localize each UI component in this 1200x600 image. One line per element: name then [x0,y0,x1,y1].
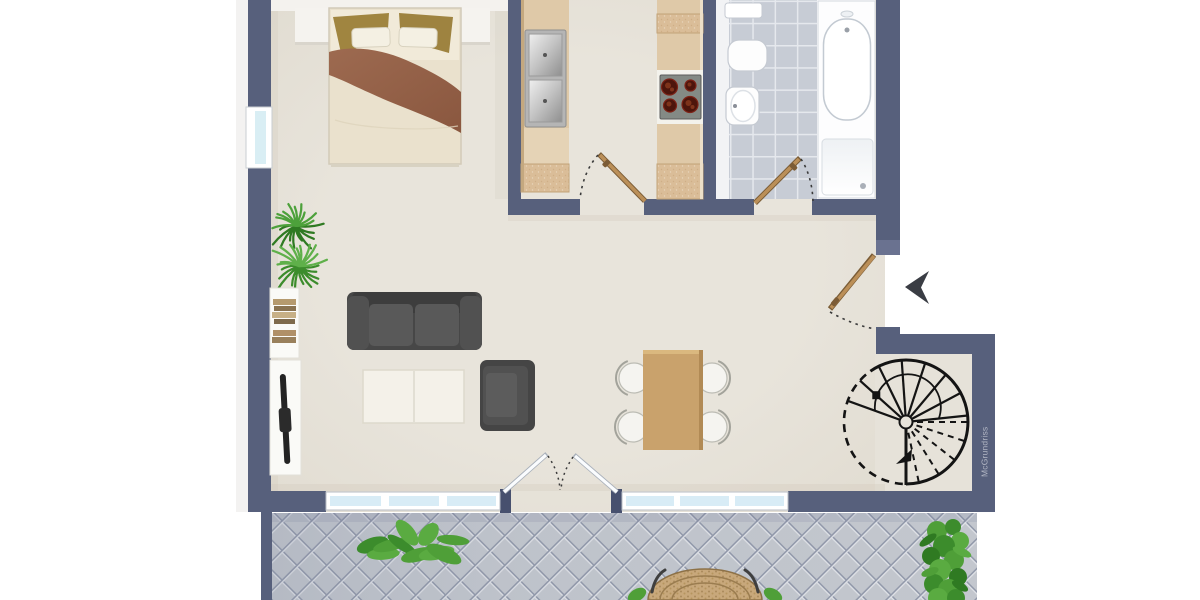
svg-text:McGrundriss: McGrundriss [980,427,990,477]
